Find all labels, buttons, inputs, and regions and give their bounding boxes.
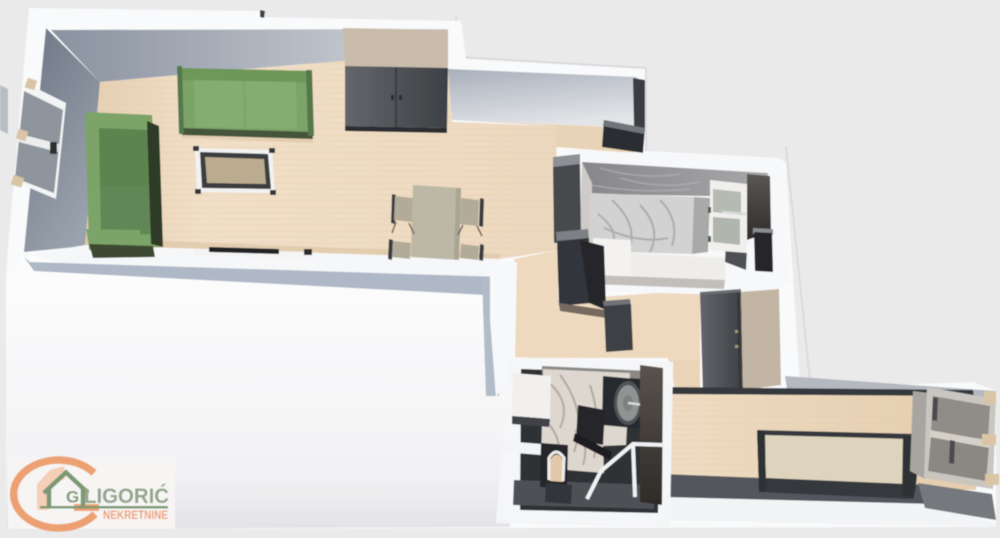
svg-text:LIGORIĆ: LIGORIĆ: [84, 484, 169, 508]
svg-text:G: G: [66, 488, 79, 507]
svg-text:NEKRETNINE: NEKRETNINE: [103, 508, 168, 522]
